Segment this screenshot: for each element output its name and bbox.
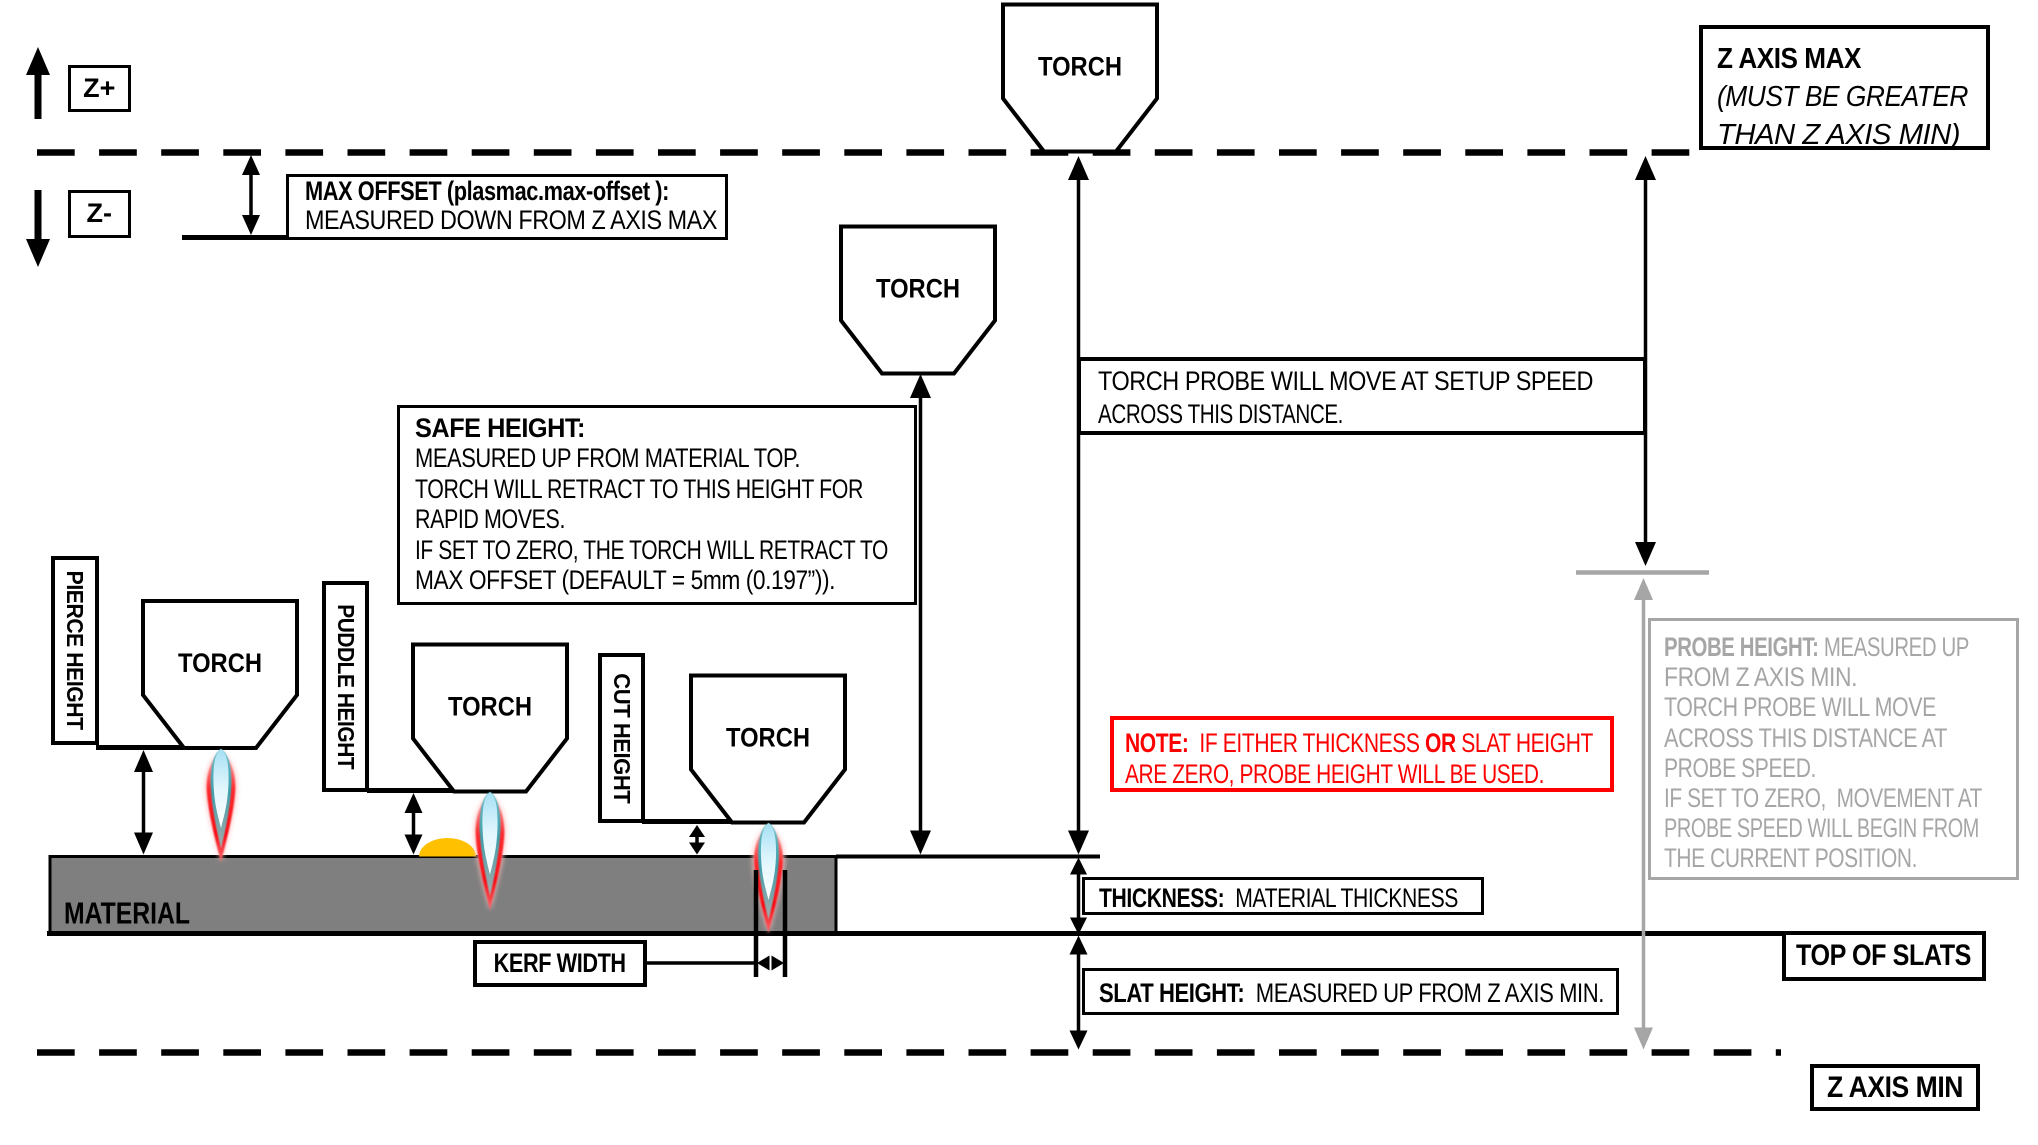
svg-text:MATERIAL: MATERIAL: [64, 896, 190, 931]
svg-text:TORCH: TORCH: [448, 692, 532, 722]
svg-text:TORCH: TORCH: [1038, 52, 1122, 82]
svg-text:TORCH: TORCH: [876, 274, 960, 304]
svg-text:TORCH: TORCH: [178, 648, 262, 678]
svg-text:TORCH: TORCH: [726, 723, 810, 753]
